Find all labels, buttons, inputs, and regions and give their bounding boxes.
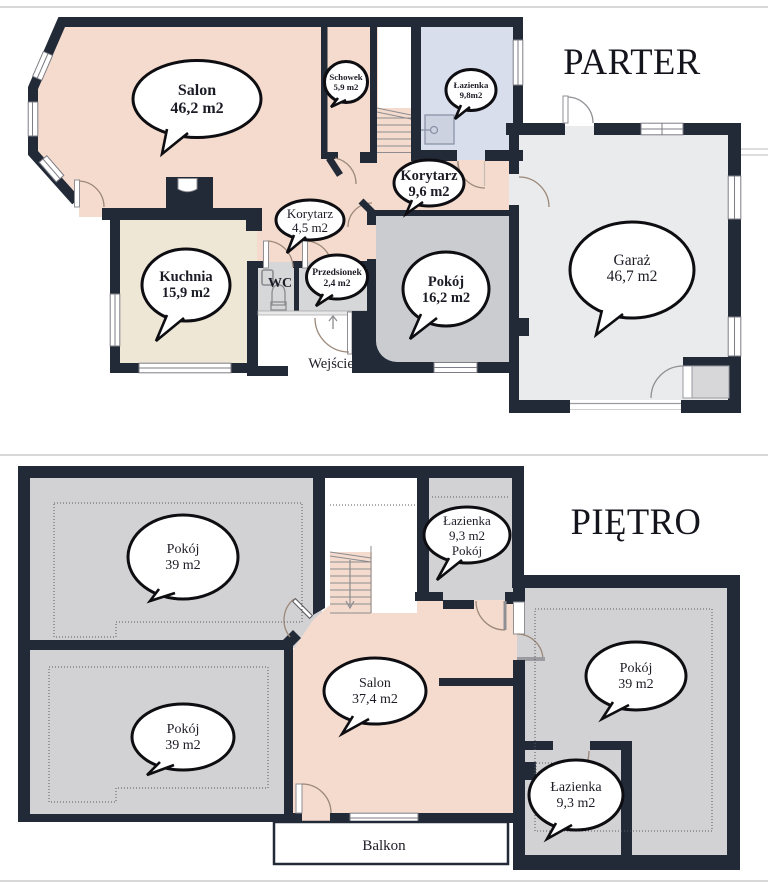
svg-text:Pokój: Pokój (452, 543, 482, 558)
svg-text:Salon: Salon (178, 82, 216, 99)
svg-text:39 m2: 39 m2 (165, 738, 200, 753)
svg-text:39 m2: 39 m2 (618, 677, 653, 692)
svg-text:Przedsionek: Przedsionek (312, 268, 362, 278)
svg-text:Schowek: Schowek (329, 72, 362, 82)
svg-text:15,9 m2: 15,9 m2 (162, 285, 210, 301)
svg-text:16,2 m2: 16,2 m2 (422, 290, 470, 306)
svg-text:Kuchnia: Kuchnia (159, 269, 213, 285)
svg-text:Salon: Salon (359, 676, 391, 691)
svg-text:Pokój: Pokój (620, 661, 653, 676)
svg-text:9,3 m2: 9,3 m2 (557, 796, 596, 811)
svg-text:4,5 m2: 4,5 m2 (292, 220, 328, 235)
svg-text:Korytarz: Korytarz (287, 206, 333, 221)
svg-text:2,4 m2: 2,4 m2 (324, 279, 351, 289)
svg-text:Łazienka: Łazienka (454, 80, 489, 90)
svg-text:39 m2: 39 m2 (165, 558, 200, 573)
svg-text:Pokój: Pokój (167, 542, 200, 557)
svg-text:Garaż: Garaż (614, 252, 651, 269)
svg-text:Korytarz: Korytarz (400, 168, 458, 184)
svg-text:9,6 m2: 9,6 m2 (408, 184, 449, 200)
svg-text:PIĘTRO: PIĘTRO (571, 501, 702, 542)
svg-text:Wejście: Wejście (308, 356, 354, 372)
svg-text:5,9 m2: 5,9 m2 (334, 82, 360, 92)
svg-text:Łazienka: Łazienka (550, 780, 602, 795)
svg-text:PARTER: PARTER (563, 41, 701, 82)
svg-text:Łazienka: Łazienka (443, 513, 491, 528)
svg-text:Balkon: Balkon (362, 838, 406, 854)
svg-text:46,7 m2: 46,7 m2 (607, 268, 658, 285)
svg-text:46,2 m2: 46,2 m2 (170, 100, 223, 117)
svg-text:9,3 m2: 9,3 m2 (449, 528, 485, 543)
svg-text:Pokój: Pokój (167, 722, 200, 737)
svg-text:37,4 m2: 37,4 m2 (352, 692, 398, 707)
svg-text:9,8m2: 9,8m2 (460, 90, 483, 100)
svg-text:WC: WC (268, 276, 292, 291)
svg-text:Pokój: Pokój (428, 274, 464, 290)
